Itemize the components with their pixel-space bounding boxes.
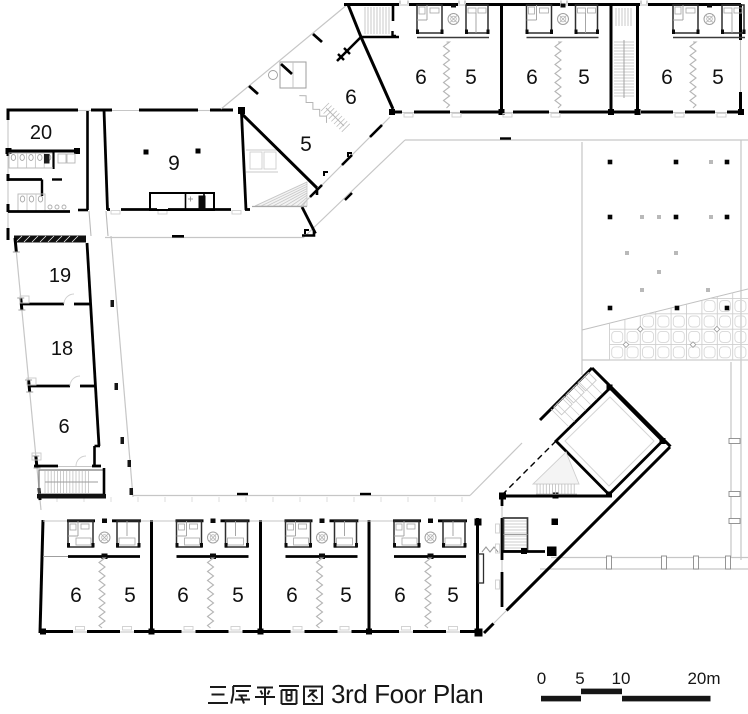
svg-text:6: 6	[394, 584, 406, 607]
svg-text:6: 6	[177, 584, 189, 607]
svg-text:6: 6	[58, 416, 69, 438]
svg-text:5: 5	[447, 584, 459, 607]
svg-text:6: 6	[661, 66, 673, 89]
svg-text:6: 6	[345, 86, 357, 109]
svg-text:6: 6	[526, 66, 538, 89]
svg-text:5: 5	[712, 66, 724, 89]
svg-text:0: 0	[537, 669, 546, 688]
svg-text:5: 5	[578, 66, 590, 89]
svg-text:20: 20	[30, 122, 52, 144]
svg-text:6: 6	[70, 584, 82, 607]
svg-text:5: 5	[232, 584, 244, 607]
svg-text:6: 6	[415, 66, 427, 89]
svg-text:3rd Foor Plan: 3rd Foor Plan	[331, 679, 483, 709]
svg-text:5: 5	[340, 584, 352, 607]
svg-text:9: 9	[168, 152, 180, 175]
svg-text:5: 5	[465, 66, 477, 89]
svg-text:10: 10	[612, 669, 631, 688]
svg-text:19: 19	[49, 265, 71, 287]
svg-text:20m: 20m	[687, 669, 720, 688]
svg-text:5: 5	[300, 133, 312, 156]
svg-text:6: 6	[286, 584, 298, 607]
svg-text:18: 18	[51, 338, 73, 360]
svg-text:5: 5	[124, 584, 136, 607]
svg-text:5: 5	[575, 669, 584, 688]
